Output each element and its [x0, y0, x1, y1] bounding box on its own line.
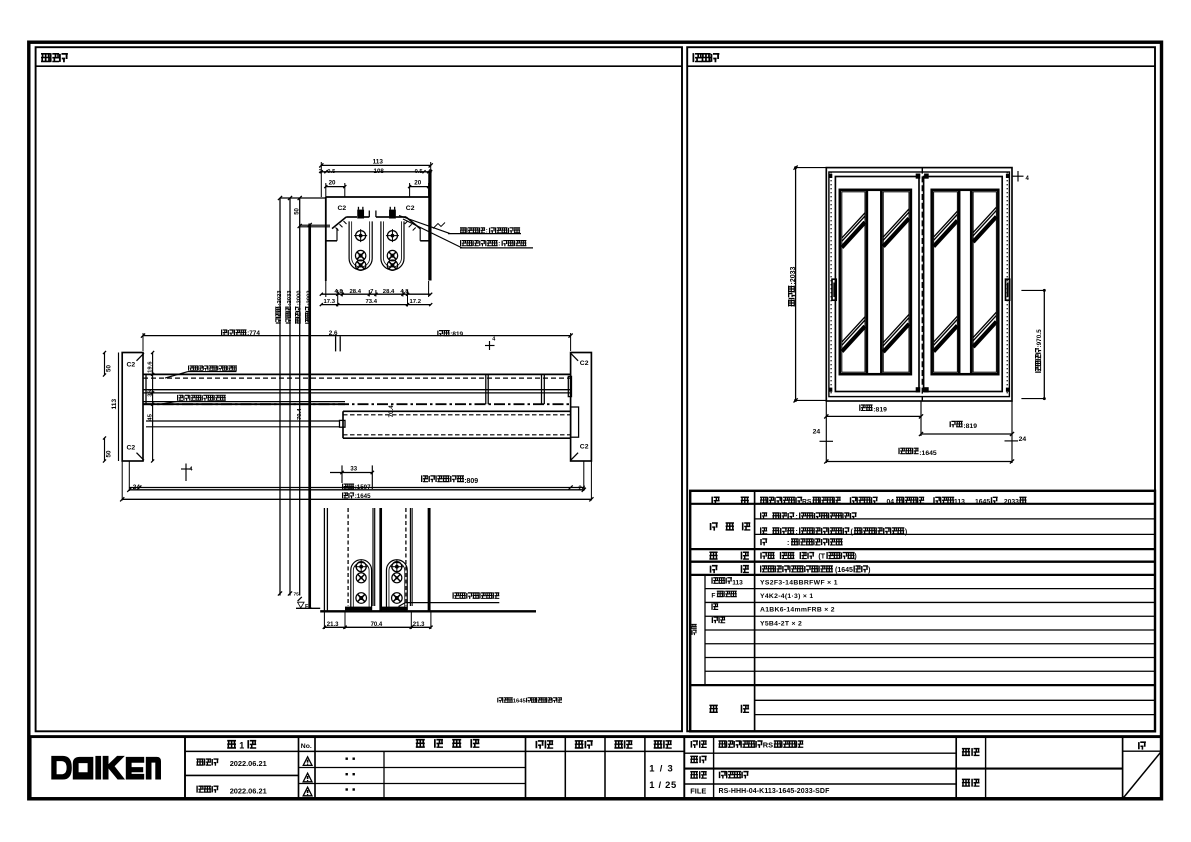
svg-text:Y5B4-2T × 2: Y5B4-2T × 2: [760, 620, 802, 627]
svg-text::2000: :2000: [297, 290, 303, 306]
svg-text::774: :774: [247, 330, 260, 337]
svg-text:No.: No.: [301, 743, 312, 750]
svg-text::1645: :1645: [355, 493, 371, 500]
svg-text:RS: RS: [763, 741, 773, 750]
svg-text:C2: C2: [127, 362, 136, 369]
svg-text:20: 20: [414, 179, 421, 186]
svg-text:20: 20: [329, 179, 336, 186]
svg-text:70.4: 70.4: [371, 622, 383, 628]
svg-text:2022.06.21: 2022.06.21: [230, 759, 267, 768]
svg-text:FL: FL: [305, 604, 312, 610]
svg-text:70.4: 70.4: [297, 408, 303, 420]
svg-text:1 / 3: 1 / 3: [649, 762, 674, 773]
svg-text:): ): [868, 567, 870, 574]
svg-text:50: 50: [294, 207, 300, 214]
svg-text:2022.06.21: 2022.06.21: [230, 786, 267, 795]
svg-text:50: 50: [106, 365, 113, 372]
svg-text:1 / 25: 1 / 25: [649, 779, 677, 790]
svg-text:24: 24: [1019, 436, 1027, 443]
svg-text::: :: [796, 514, 798, 521]
svg-text:Y4K2-4(1·3) × 1: Y4K2-4(1·3) × 1: [760, 593, 813, 600]
svg-text:73.4: 73.4: [366, 299, 378, 305]
svg-text:70.4: 70.4: [388, 405, 395, 418]
svg-text::819: :819: [963, 423, 977, 430]
svg-text:F: F: [711, 592, 715, 599]
svg-text:RS-HHH-04-K113-1645-2033-SDF: RS-HHH-04-K113-1645-2033-SDF: [719, 788, 831, 795]
svg-text:17.3: 17.3: [324, 299, 336, 305]
svg-text:50: 50: [106, 450, 113, 457]
svg-text::819: :819: [450, 331, 463, 338]
svg-text:113: 113: [732, 579, 743, 586]
svg-text:C2: C2: [127, 445, 136, 452]
svg-text:1645: 1645: [975, 498, 990, 505]
svg-text:21.3: 21.3: [327, 622, 339, 628]
svg-text:(T: (T: [818, 554, 825, 561]
svg-text::809: :809: [464, 478, 478, 485]
svg-text::2033: :2033: [790, 266, 797, 284]
svg-text:): ): [905, 529, 907, 536]
svg-text:28.4: 28.4: [350, 289, 362, 295]
svg-text::2023: :2023: [277, 290, 283, 306]
svg-text:0.5: 0.5: [415, 169, 424, 175]
svg-text::: :: [787, 540, 789, 547]
svg-text::: :: [796, 529, 798, 536]
svg-text::: :: [486, 229, 488, 235]
svg-text:C2: C2: [338, 205, 347, 212]
svg-text:04: 04: [887, 498, 895, 505]
svg-text:2033: 2033: [1004, 498, 1019, 505]
svg-text:108: 108: [374, 168, 385, 175]
svg-text:(1645: (1645: [835, 567, 853, 574]
svg-text:C2: C2: [406, 205, 415, 212]
svg-text:113: 113: [111, 399, 118, 410]
svg-text:45: 45: [148, 413, 154, 420]
svg-text:36: 36: [148, 390, 154, 397]
svg-text:YS2F3-14BBRFWF × 1: YS2F3-14BBRFWF × 1: [760, 579, 838, 586]
svg-text:17.2: 17.2: [410, 299, 422, 305]
svg-text:21.3: 21.3: [413, 622, 425, 628]
svg-text:24: 24: [813, 429, 821, 436]
svg-text:28.4: 28.4: [383, 289, 395, 295]
svg-text:1: 1: [239, 740, 244, 750]
svg-text::2002: :2002: [307, 290, 313, 306]
svg-text:C2: C2: [580, 360, 589, 367]
svg-text:113: 113: [954, 498, 965, 505]
svg-text::970.5: :970.5: [1036, 329, 1043, 348]
svg-text::2033: :2033: [287, 290, 293, 306]
svg-text::1645: :1645: [919, 450, 937, 457]
svg-text:2.6: 2.6: [329, 330, 338, 337]
svg-text:C2: C2: [580, 443, 589, 450]
svg-text::819: :819: [873, 407, 887, 414]
svg-text:FILE: FILE: [690, 786, 706, 795]
svg-text:75: 75: [294, 592, 300, 598]
svg-text:33: 33: [350, 466, 357, 472]
svg-text::: :: [498, 241, 500, 247]
svg-text:): ): [854, 554, 856, 561]
svg-text:A1BK6-14mmFRB × 2: A1BK6-14mmFRB × 2: [760, 607, 835, 614]
svg-text::1597: :1597: [355, 484, 371, 491]
svg-text:1645: 1645: [513, 698, 527, 704]
svg-text:RS: RS: [802, 498, 812, 505]
svg-text:0.5: 0.5: [327, 169, 336, 175]
svg-text:113: 113: [373, 159, 384, 166]
svg-text:4: 4: [492, 337, 495, 343]
svg-text:19.6: 19.6: [148, 361, 154, 373]
